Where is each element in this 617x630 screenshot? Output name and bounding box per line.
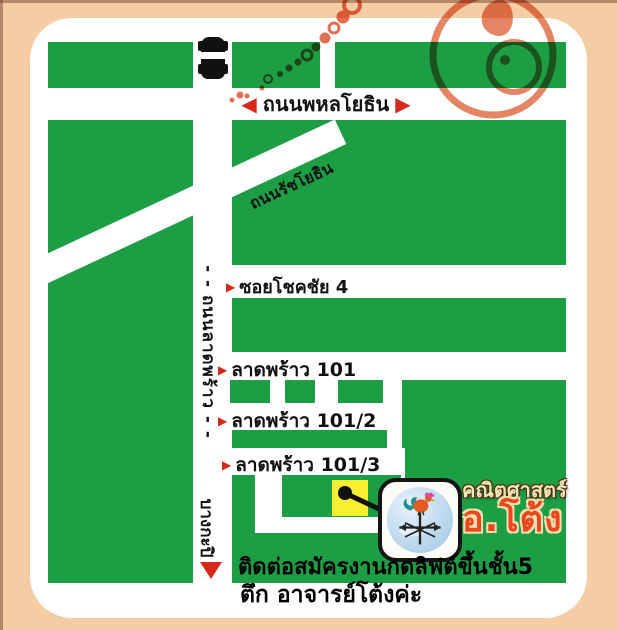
arrow-down-bangkapi-icon [200, 562, 222, 579]
logo-text: คณิตศาสตร์ อ.โต้ง [462, 480, 567, 539]
logo-teacher-name: อ.โต้ง [462, 501, 567, 539]
label-phahonyothin: ◀ ถนนพหลโยธิน ▶ [226, 90, 426, 118]
road-latphrao-101-east [402, 352, 566, 380]
arrow-left-icon: ◀ [241, 94, 256, 114]
arrow-right-small-icon: ▶ [222, 459, 231, 471]
car-wheel [198, 41, 204, 51]
road-connecting-alley [387, 352, 402, 480]
marker-dot [338, 486, 352, 500]
label-latphrao101-3-text: ลาดพร้าว 101/3 [235, 450, 380, 480]
map-flyer: { "colors": { "background_peach": "#f5cd… [0, 0, 617, 630]
car-windshield [201, 52, 225, 59]
rooster-weathervane-icon [390, 490, 450, 550]
label-chokchai4-text: ซอยโชคชัย 4 [239, 272, 348, 301]
car-wheel [198, 64, 204, 74]
arrow-right-icon: ▶ [395, 94, 410, 114]
label-latphrao101: ▶ ลาดพร้าว 101 [218, 355, 356, 385]
label-latphrao101-3: ▶ ลาดพร้าว 101/3 [222, 450, 380, 480]
car-wheel [222, 41, 228, 51]
note-line2: ตึก อาจารย์โต้งค่ะ [240, 577, 422, 613]
label-latphrao101-2: ▶ ลาดพร้าว 101/2 [218, 406, 376, 436]
label-phahonyothin-text: ถนนพหลโยธิน [263, 88, 389, 120]
label-latphrao-vertical: - - ถนนลาดพร้าว - - [198, 222, 222, 482]
label-chokchai4: ▶ ซอยโชคชัย 4 [226, 272, 348, 301]
canvas-left-line [0, 0, 3, 630]
canvas-top-line [0, 0, 617, 3]
logo-school-name: คณิตศาสตร์ [462, 480, 567, 501]
logo-circle [387, 487, 453, 553]
arrow-right-small-icon: ▶ [226, 281, 235, 293]
car-wheel [222, 64, 228, 74]
map-sheet: ◀ ถนนพหลโยธิน ▶ ถนนรัชโยธิน ▶ ซอยโชคชัย … [30, 18, 587, 618]
label-latphrao101-text: ลาดพร้าว 101 [231, 355, 356, 385]
car-top-view-icon [198, 37, 228, 79]
road-ratchayothin-top-junction [320, 42, 335, 88]
label-latphrao101-2-text: ลาดพร้าว 101/2 [231, 406, 376, 436]
